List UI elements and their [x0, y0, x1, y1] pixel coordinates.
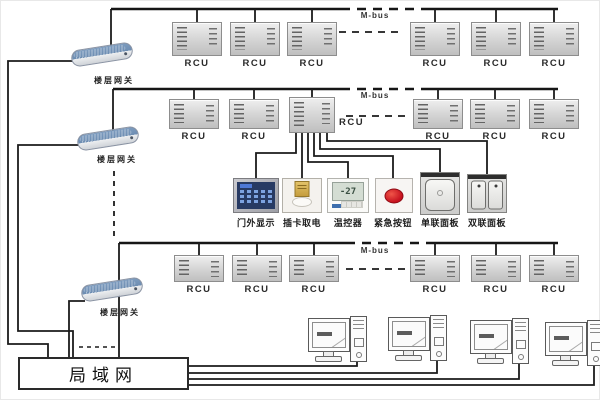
rcu-terminals — [322, 103, 330, 124]
rcu-terminals — [447, 28, 455, 48]
rcu-label: RCU — [474, 58, 518, 69]
rcu-terminals — [566, 261, 574, 277]
rcu-unit — [169, 99, 219, 129]
gateway-trunks — [8, 61, 115, 357]
floor-gateway-label: 楼层网关 — [94, 75, 134, 86]
rcu-terminals — [566, 28, 574, 48]
rcu-terminals — [237, 260, 247, 276]
tower-vents — [590, 324, 600, 334]
rcu-unit — [230, 22, 280, 56]
rcu-terminals — [476, 27, 486, 50]
tower-power-button — [518, 354, 524, 360]
rcu-terminals — [418, 104, 428, 123]
tower-power-button — [356, 352, 362, 358]
red-button — [385, 188, 404, 203]
monitor-screen — [392, 321, 426, 347]
rcu-terminals — [269, 261, 277, 277]
floor-gateway-label: 楼层网关 — [100, 307, 140, 318]
rcu-terminals — [508, 28, 516, 48]
rcu-unit — [289, 255, 339, 282]
rcu-label: RCU — [292, 284, 336, 295]
monitor-base — [395, 355, 422, 361]
monitor-screen — [312, 322, 346, 348]
rcu-unit — [229, 99, 279, 129]
rcu-unit — [172, 22, 222, 56]
rcu-terminals — [266, 105, 274, 122]
rcu-label: RCU — [232, 131, 276, 142]
screen-glare — [493, 338, 508, 350]
tower-power-button — [593, 356, 599, 362]
pc-tower — [350, 316, 367, 362]
device-label: 双联面板 — [459, 216, 515, 229]
screen-glare — [331, 336, 346, 348]
rcu-terminals — [475, 104, 485, 123]
door-display-screen — [237, 182, 275, 209]
key-card — [295, 181, 310, 197]
floor-gateway-label: 楼层网关 — [97, 154, 137, 165]
tower-power-button — [436, 351, 442, 357]
pc-tower — [430, 315, 447, 361]
rcu-unit — [410, 255, 460, 282]
emergency-button — [375, 178, 413, 213]
workstation-computer — [470, 320, 528, 366]
rcu-unit — [471, 22, 521, 56]
screen-text — [554, 336, 569, 340]
thermostat: -27 — [327, 178, 369, 213]
single-gang-panel — [420, 172, 460, 215]
rcu-unit — [232, 255, 282, 282]
rcu-terminals — [415, 27, 425, 50]
rcu-label: RCU — [532, 131, 576, 142]
workstation-computer — [545, 322, 600, 368]
monitor — [545, 322, 587, 356]
rcu-terminals — [326, 261, 334, 277]
monitor-screen — [549, 326, 583, 352]
tower-drive — [434, 337, 444, 346]
rcu-terminals — [450, 105, 458, 122]
rcu-label: RCU — [175, 58, 219, 69]
screen-text — [397, 331, 412, 335]
monitor — [388, 317, 430, 351]
rcu-terminals — [447, 261, 455, 277]
rcu-terminals — [292, 27, 302, 50]
rcu-label: RCU — [474, 284, 518, 295]
screen-text — [479, 334, 494, 338]
lan-label: 局域网 — [69, 361, 138, 386]
pc-tower — [587, 320, 600, 366]
thermostat-buttons — [341, 201, 363, 208]
rcu-label: RCU — [532, 58, 576, 69]
rcu-unit — [529, 255, 579, 282]
rcu-label: RCU — [413, 284, 457, 295]
rcu-label: RCU — [233, 58, 277, 69]
rcu-terminals — [534, 260, 544, 276]
tower-vents — [433, 319, 444, 329]
door-display — [233, 178, 279, 213]
tower-drive — [591, 342, 600, 351]
rcu-terminals — [534, 104, 544, 123]
screen-glare — [568, 340, 583, 352]
rcu-terminals — [235, 27, 245, 50]
tower-vents — [353, 320, 364, 330]
card-power-switch — [282, 178, 322, 213]
lan-box: 局域网 — [18, 357, 189, 390]
workstation-computer — [308, 318, 366, 364]
rcu-unit — [471, 255, 521, 282]
rcu-unit — [410, 22, 460, 56]
rcu-terminals — [415, 260, 425, 276]
rcu-terminals — [508, 261, 516, 277]
thermostat-logo — [332, 204, 341, 208]
rcu-unit — [529, 22, 579, 56]
rcu-label: RCU — [473, 131, 517, 142]
double-gang-panel — [467, 174, 507, 213]
rcu-label: RCU — [532, 284, 576, 295]
screen-glare — [411, 335, 426, 347]
rcu-unit — [529, 99, 579, 129]
rcu-terminals — [209, 28, 217, 48]
rcu-terminals — [234, 104, 244, 123]
rcu-terminals — [476, 260, 486, 276]
workstation-computer — [388, 317, 446, 363]
card-slot — [292, 197, 312, 207]
rcu-terminals — [179, 260, 189, 276]
rcu-label: RCU — [413, 58, 457, 69]
rcu-label: RCU — [172, 131, 216, 142]
rcu-terminals — [324, 28, 332, 48]
rcu-label: RCU — [235, 284, 279, 295]
rcu-unit — [287, 22, 337, 56]
rcu-terminals — [174, 104, 184, 123]
rocker-switch — [425, 179, 455, 211]
thermostat-lcd: -27 — [332, 182, 364, 201]
rcu-terminals — [267, 28, 275, 48]
rcu-terminals — [294, 260, 304, 276]
monitor-base — [315, 356, 342, 362]
rcu-terminals — [206, 105, 214, 122]
rocker-switches — [471, 180, 503, 209]
rcu-unit — [413, 99, 463, 129]
mbus-label: M-bus — [353, 11, 397, 20]
rcu-label: RCU — [339, 117, 364, 128]
rcu-terminals — [507, 105, 515, 122]
pc-tower — [512, 318, 529, 364]
rcu-label: RCU — [416, 131, 460, 142]
rcu-terminals — [211, 261, 219, 277]
monitor-base — [552, 360, 579, 366]
rcu-terminals — [534, 27, 544, 50]
tower-drive — [516, 340, 526, 349]
rcu-terminals — [294, 102, 304, 127]
monitor — [470, 320, 512, 354]
tower-drive — [354, 338, 364, 347]
rcu-terminals — [177, 27, 187, 50]
rcu-unit — [470, 99, 520, 129]
mbus-label: M-bus — [353, 246, 397, 255]
rcu-terminals — [566, 105, 574, 122]
monitor-screen — [474, 324, 508, 350]
screen-text — [317, 332, 332, 336]
rcu-unit — [289, 97, 335, 133]
mbus-label: M-bus — [353, 91, 397, 100]
rcu-unit — [174, 255, 224, 282]
monitor — [308, 318, 350, 352]
rcu-label: RCU — [177, 284, 221, 295]
tower-vents — [515, 322, 526, 332]
rcu-network-diagram: { "labels": { "rcu": "RCU", "mbus": "M-b… — [0, 0, 600, 400]
monitor-base — [477, 358, 504, 364]
rcu-label: RCU — [290, 58, 334, 69]
